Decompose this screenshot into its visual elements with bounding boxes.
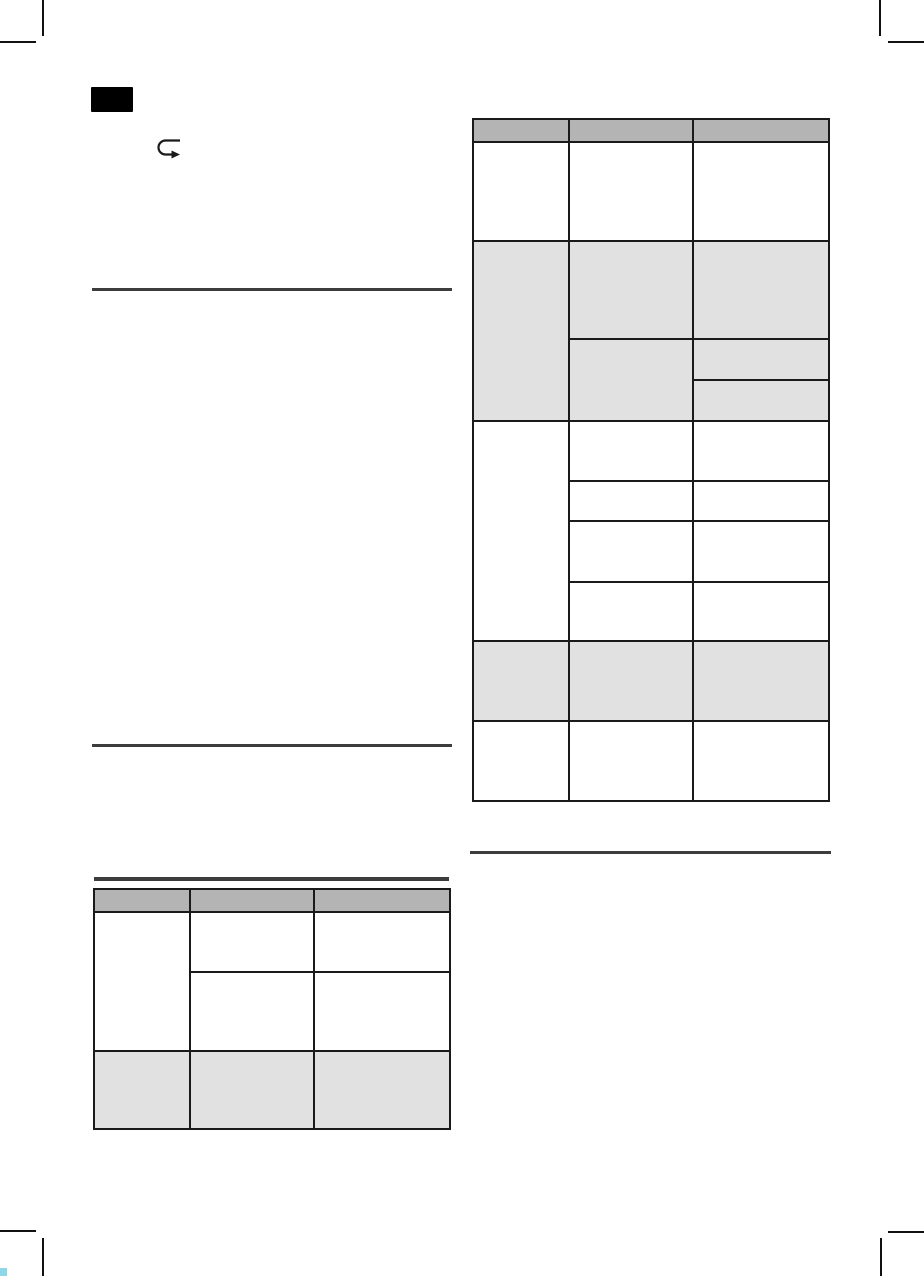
table-cell <box>95 890 189 911</box>
section-divider-rule <box>94 877 449 881</box>
table-cell <box>95 1052 189 1128</box>
table-cell <box>570 722 692 800</box>
crop-mark-top-right-horizontal <box>888 41 924 43</box>
table-cell <box>694 242 828 338</box>
table-cell <box>315 973 449 1050</box>
table-cell <box>570 642 692 720</box>
table-cell <box>694 642 828 720</box>
table-cell <box>694 381 828 420</box>
table-cell <box>191 1052 313 1128</box>
table-cell <box>315 913 449 971</box>
table-cell <box>570 242 692 338</box>
table-cell <box>474 722 568 800</box>
crop-mark-registration-cyan <box>0 1268 7 1276</box>
table-cell <box>315 1052 449 1128</box>
table-cell <box>694 340 828 379</box>
crop-mark-bottom-left-horizontal <box>0 1230 36 1232</box>
table-cell <box>694 482 828 520</box>
crop-mark-bottom-right-horizontal <box>888 1231 924 1233</box>
crop-mark-top-right-vertical <box>879 0 881 36</box>
table-cell <box>570 522 692 581</box>
table-cell <box>570 340 692 420</box>
table-cell <box>570 143 692 240</box>
table-cell <box>694 522 828 581</box>
table-cell <box>474 642 568 720</box>
section-divider-rule <box>470 851 831 854</box>
table-cell <box>474 143 568 240</box>
page <box>0 0 924 1276</box>
language-tab <box>91 87 133 112</box>
table-cell <box>191 913 313 971</box>
left-column-table <box>93 888 451 1130</box>
table-cell <box>315 890 449 911</box>
table-cell <box>191 890 313 911</box>
table-cell <box>570 482 692 520</box>
right-column-table <box>472 118 830 802</box>
table-cell <box>191 973 313 1050</box>
table-cell <box>694 722 828 800</box>
table-cell <box>474 120 568 141</box>
table-cell <box>474 422 568 640</box>
crop-mark-top-left-vertical <box>42 0 44 36</box>
crop-mark-bottom-right-vertical <box>880 1238 882 1276</box>
table-cell <box>570 120 692 141</box>
table-cell <box>474 242 568 420</box>
section-divider-rule <box>92 744 452 747</box>
table-cell <box>694 120 828 141</box>
table-cell <box>570 583 692 640</box>
crop-mark-top-left-horizontal <box>0 41 36 43</box>
table-cell <box>694 143 828 240</box>
table-cell <box>95 913 189 1050</box>
table-cell <box>694 422 828 480</box>
section-divider-rule <box>92 288 452 291</box>
return-arrow-icon <box>154 136 182 159</box>
table-cell <box>694 583 828 640</box>
table-cell <box>570 422 692 480</box>
crop-mark-bottom-left-vertical <box>42 1238 44 1276</box>
